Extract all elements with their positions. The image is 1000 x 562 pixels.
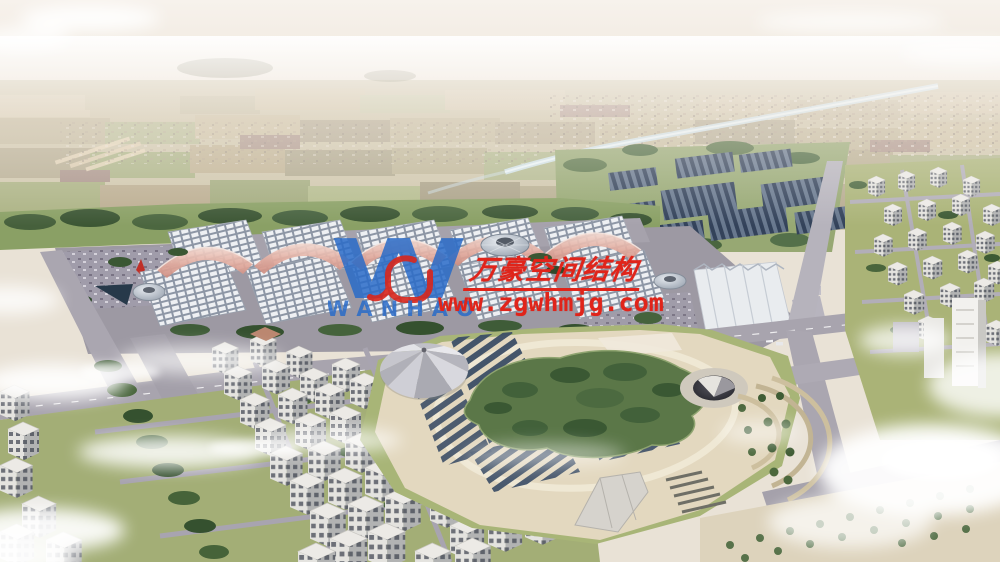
watermark-company-name: 万豪空间结构: [463, 248, 645, 291]
park-tent: [380, 343, 469, 400]
park-cone-pit: [680, 368, 748, 408]
atmospheric-haze: [0, 36, 1000, 226]
watermark-website-url: www.zgwhmjg.com: [438, 288, 664, 317]
aerial-rendering: W WANHAO 万豪空间结构 www.zgwhmjg.com: [0, 0, 1000, 562]
round-hall-west: [133, 284, 165, 301]
round-hall-east: [654, 273, 686, 289]
